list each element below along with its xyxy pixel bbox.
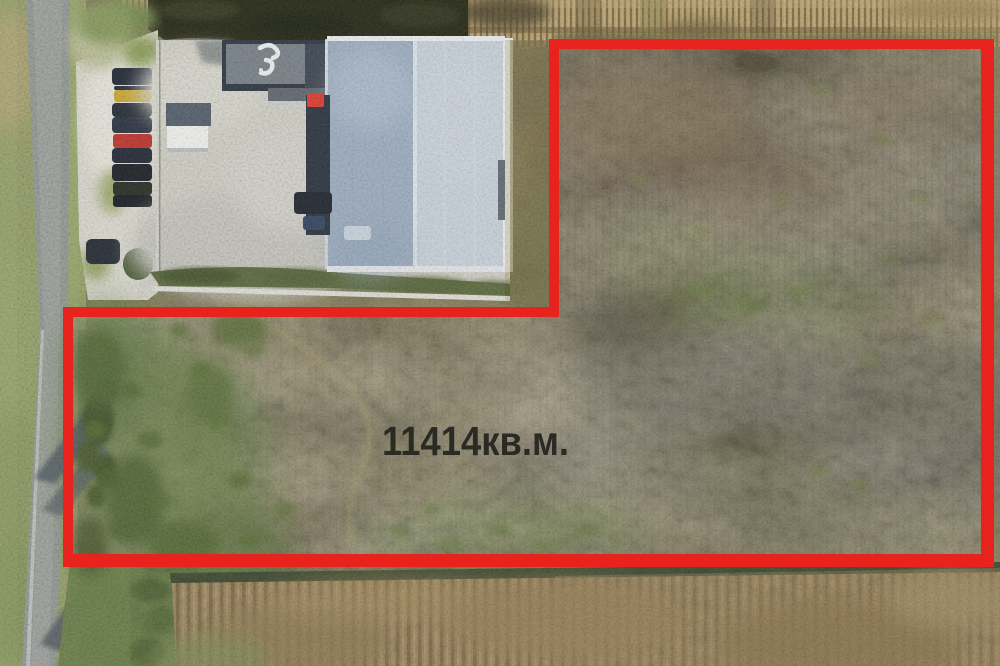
svg-text:11414кв.м.: 11414кв.м. [382,418,569,464]
